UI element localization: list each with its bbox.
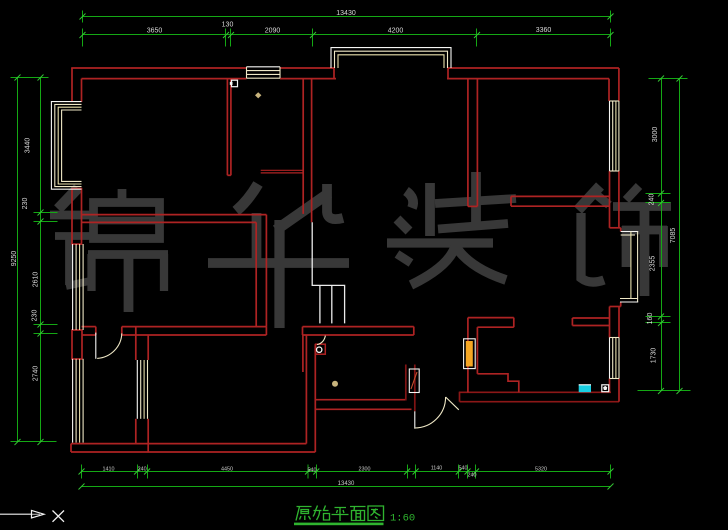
svg-text:5320: 5320 [535, 467, 547, 473]
svg-text:13430: 13430 [338, 481, 355, 487]
svg-text:2355: 2355 [650, 256, 657, 272]
svg-text:3650: 3650 [147, 28, 163, 35]
svg-text:7085: 7085 [670, 228, 677, 244]
svg-text:1730: 1730 [651, 348, 658, 364]
svg-text:3000: 3000 [652, 127, 659, 143]
svg-text:160: 160 [647, 313, 654, 325]
svg-text:2740: 2740 [33, 366, 40, 382]
svg-text:4200: 4200 [388, 28, 404, 35]
svg-text:240: 240 [138, 467, 147, 473]
svg-text:240: 240 [649, 194, 656, 206]
svg-text:4450: 4450 [221, 467, 233, 473]
svg-text:3440: 3440 [25, 138, 32, 154]
svg-text:230: 230 [32, 310, 39, 322]
svg-text:2090: 2090 [265, 28, 281, 35]
svg-text:540: 540 [308, 468, 317, 474]
svg-text:13430: 13430 [336, 10, 356, 17]
svg-text:240: 240 [468, 473, 477, 479]
svg-text:2610: 2610 [33, 272, 40, 288]
svg-text:9250: 9250 [11, 251, 18, 267]
svg-text:1140: 1140 [431, 466, 443, 472]
svg-text:230: 230 [22, 198, 29, 210]
svg-text:540: 540 [459, 466, 468, 472]
svg-text:3360: 3360 [536, 27, 552, 34]
svg-text:1410: 1410 [103, 467, 115, 473]
svg-text:130: 130 [222, 22, 234, 29]
svg-text:1:60: 1:60 [390, 513, 415, 525]
svg-text:2300: 2300 [359, 467, 371, 473]
